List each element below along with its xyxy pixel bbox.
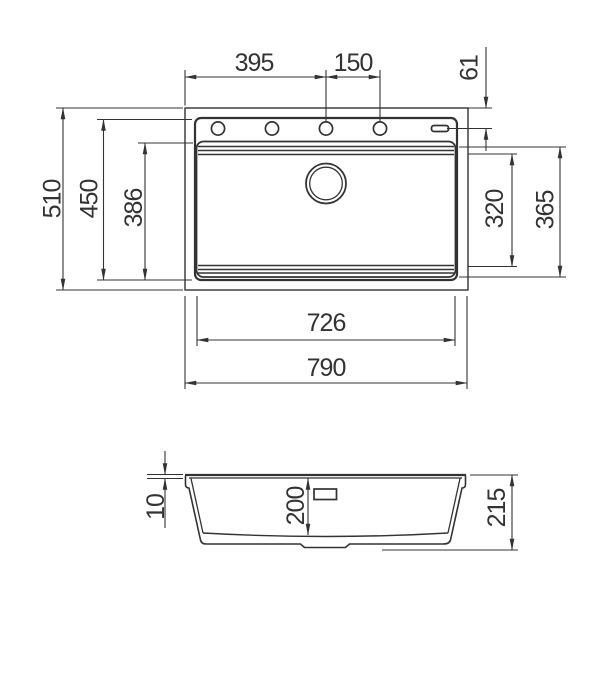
bowl-contour-bottom: [198, 266, 454, 274]
overflow-slot: [432, 126, 449, 132]
tap-hole-3: [319, 122, 332, 135]
dim-hole-inset: 61: [447, 47, 492, 151]
dim-label-510: 510: [39, 180, 67, 219]
dim-label-726: 726: [307, 309, 346, 337]
top-view: 395 150 61 510 450: [39, 47, 567, 389]
dim-bowl-width-inner: 320: [468, 154, 517, 267]
dim-holes-span: 395: [185, 49, 326, 122]
drain-hole: [306, 164, 346, 204]
dim-label-395: 395: [235, 49, 274, 77]
dim-rim-height: 10: [142, 451, 183, 528]
dim-label-450: 450: [76, 180, 104, 219]
dim-label-61: 61: [456, 55, 484, 81]
dim-bowl-depth: 386: [120, 143, 193, 280]
dim-label-200: 200: [282, 487, 310, 526]
tap-hole-4: [373, 122, 386, 135]
dim-label-10: 10: [142, 494, 170, 520]
bowl-contour-top: [198, 147, 454, 155]
dim-label-365: 365: [532, 191, 560, 230]
dim-label-215: 215: [483, 489, 511, 528]
tap-hole-1: [211, 122, 224, 135]
tap-holes: [211, 122, 386, 135]
dim-label-386: 386: [120, 189, 148, 228]
drawing-canvas: 395 150 61 510 450: [0, 0, 600, 689]
bowl-section: [191, 479, 460, 537]
sink-dimension-drawing: 395 150 61 510 450: [0, 0, 600, 689]
overflow-slot-section: [314, 489, 337, 500]
tap-hole-2: [265, 122, 278, 135]
side-view: 10 200 215: [142, 451, 518, 550]
bowl-outline: [197, 142, 456, 278]
dim-hole-spacing: 150: [326, 49, 380, 122]
dim-label-320: 320: [481, 190, 509, 229]
dim-label-150: 150: [334, 49, 373, 77]
dim-bowl-inner-depth: 200: [282, 479, 310, 536]
dim-label-790: 790: [307, 354, 346, 382]
dim-overall-depth: 510: [39, 108, 184, 290]
dim-cutout-width: 726: [197, 296, 455, 346]
